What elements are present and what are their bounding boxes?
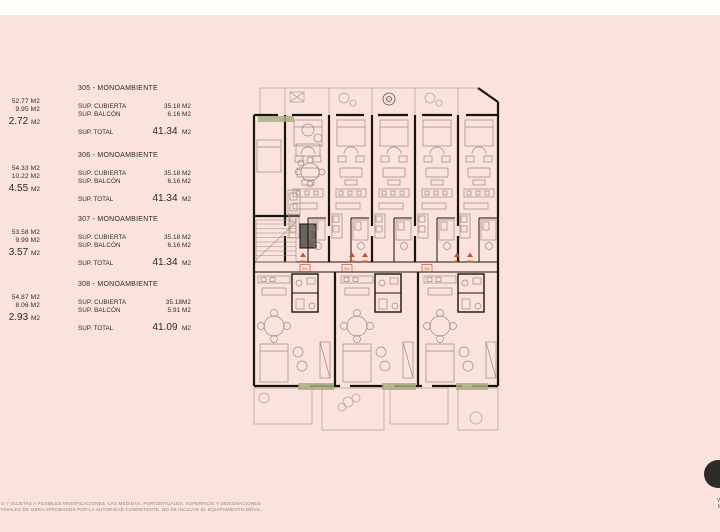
spec-value: 35.18 M2 (164, 234, 191, 242)
top-margin-strip (0, 0, 720, 15)
clipped-value: 9.99 M2 (0, 237, 40, 245)
spec-total-value: 41.34 M2 (152, 188, 191, 206)
unit-spec-306: 306 - MONOAMBIENTE SUP. CUBIERTA35.18 M2… (78, 152, 191, 206)
marker-label-303: 303 (424, 267, 430, 271)
disclaimer-line: FINALES DE OBRA APROBADOS POR LA AUTORID… (1, 507, 262, 513)
spec-total-value: 41.34 M2 (152, 121, 191, 139)
clipped-spec-group: 54.33 M2 10.22 M2 4.55 M2 (0, 165, 40, 195)
clipped-total: 4.55 M2 (0, 183, 40, 195)
spec-value: 35.18 M2 (164, 103, 191, 111)
spec-value: 6.16 M2 (168, 178, 191, 186)
marker-label-301: 301 (302, 267, 308, 271)
page: 52.77 M2 9.95 M2 2.72 M2 54.33 M2 10.22 … (0, 0, 720, 532)
disclaimer-line: O Y SUJETAS A POSIBLES MODIFICACIONES. L… (1, 501, 262, 507)
marker-label-306: 306 (362, 260, 368, 264)
balcony-strip (260, 88, 498, 115)
spec-label: SUP. TOTAL (78, 325, 113, 332)
spec-label: SUP. BALCÓN (78, 242, 121, 250)
clipped-total: 2.72 M2 (0, 116, 40, 128)
spec-value: 6.16 M2 (168, 242, 191, 250)
floor-plan: 304 305 306 307 308 301 302 303 (252, 86, 500, 432)
brand-logo-circle (704, 460, 720, 488)
spec-label: SUP. BALCÓN (78, 111, 121, 119)
spec-value: 35.18M2 (166, 299, 191, 307)
clipped-spec-group: 52.77 M2 9.95 M2 2.72 M2 (0, 98, 40, 128)
spec-value: 5.91 M2 (168, 307, 191, 315)
unit-strip (460, 120, 497, 262)
marker-label-302: 302 (344, 267, 350, 271)
spec-label: SUP. BALCÓN (78, 178, 121, 186)
spec-label: SUP. BALCÓN (78, 307, 121, 315)
disclaimer: O Y SUJETAS A POSIBLES MODIFICACIONES. L… (1, 501, 262, 513)
unit-spec-307: 307 - MONOAMBIENTE SUP. CUBIERTA35.18 M2… (78, 216, 191, 270)
planters (298, 383, 488, 390)
clipped-spec-group: 54.87 M2 8.06 M2 2.93 M2 (0, 294, 40, 324)
unit-title: 308 - MONOAMBIENTE (78, 281, 191, 288)
spec-total-value: 41.34 M2 (152, 252, 191, 270)
planter (258, 116, 294, 122)
clipped-value: 54.33 M2 (0, 165, 40, 173)
corridor-lines (254, 262, 498, 272)
spec-value: 6.16 M2 (168, 111, 191, 119)
corner-unit (257, 116, 325, 216)
unit-spec-305: 305 - MONOAMBIENTE SUP. CUBIERTA35.18 M2… (78, 85, 191, 139)
spec-label: SUP. TOTAL (78, 260, 113, 267)
clipped-value: 9.95 M2 (0, 106, 40, 114)
spec-total-value: 41.09 M2 (152, 317, 191, 335)
marker-label-305: 305 (349, 260, 355, 264)
clipped-value: 8.06 M2 (0, 302, 40, 310)
unit-strip (375, 120, 412, 262)
spec-label: SUP. TOTAL (78, 129, 113, 136)
apartment-unit (341, 274, 414, 382)
floor-plan-svg: 304 305 306 307 308 301 302 303 (252, 86, 500, 432)
clipped-value: 53.58 M2 (0, 229, 40, 237)
marker-label-308: 308 (467, 260, 473, 264)
clipped-value: 10.22 M2 (0, 173, 40, 181)
terraces (254, 388, 498, 430)
unit-strip (332, 120, 369, 262)
unit-strip (418, 120, 455, 262)
clipped-total: 3.57 M2 (0, 247, 40, 259)
clipped-spec-group: 53.58 M2 9.99 M2 3.57 M2 (0, 229, 40, 259)
apartment-unit (424, 274, 497, 382)
plan-walls (254, 88, 498, 386)
clipped-total: 2.93 M2 (0, 312, 40, 324)
apartment-unit (258, 274, 331, 382)
clipped-value: 54.87 M2 (0, 294, 40, 302)
unit-title: 307 - MONOAMBIENTE (78, 216, 191, 223)
unit-spec-308: 308 - MONOAMBIENTE SUP. CUBIERTA35.18M2 … (78, 281, 191, 335)
clipped-value: 52.77 M2 (0, 98, 40, 106)
marker-label-307: 307 (454, 260, 460, 264)
unit-title: 305 - MONOAMBIENTE (78, 85, 191, 92)
spec-value: 35.18 M2 (164, 170, 191, 178)
unit-title: 306 - MONOAMBIENTE (78, 152, 191, 159)
spec-label: SUP. TOTAL (78, 196, 113, 203)
marker-label-304: 304 (300, 260, 306, 264)
